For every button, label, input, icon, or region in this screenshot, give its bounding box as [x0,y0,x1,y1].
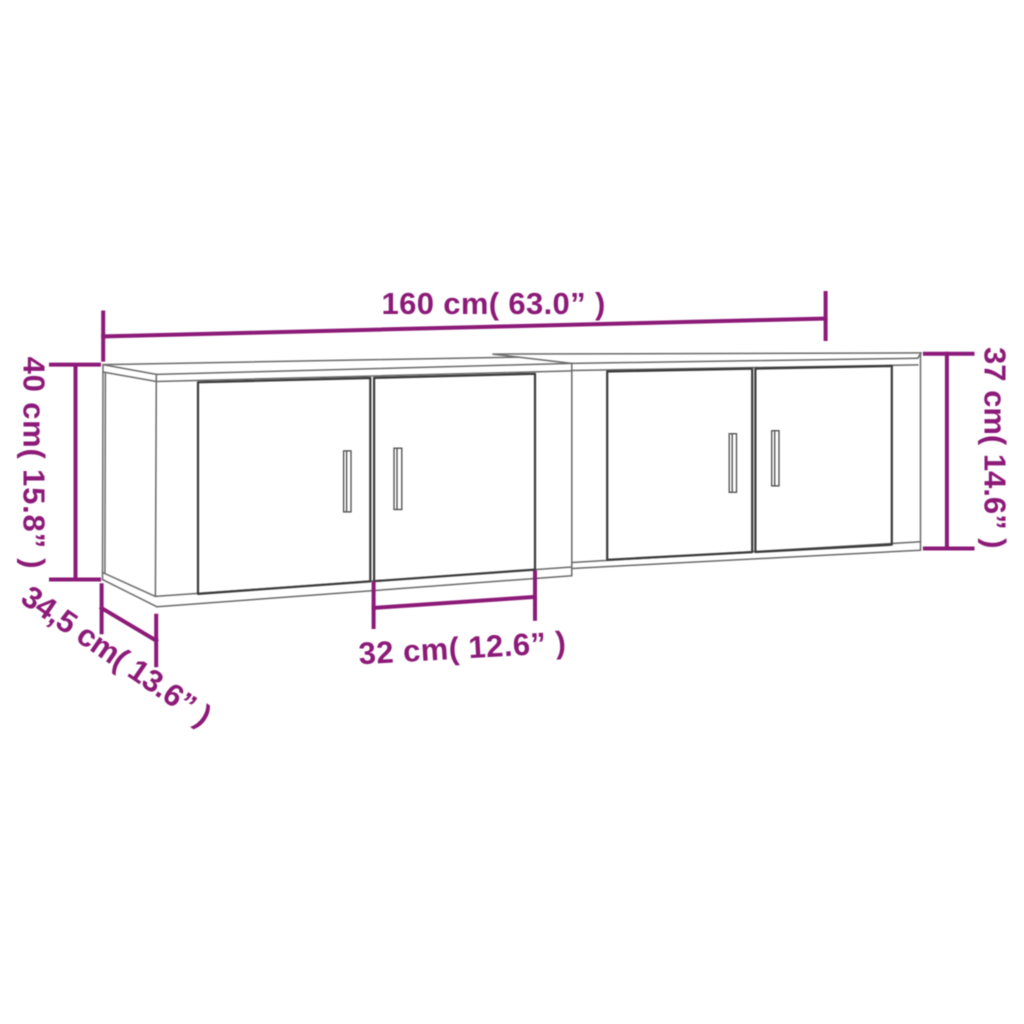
svg-text:37 cm( 14.6” ): 37 cm( 14.6” ) [978,347,1013,549]
svg-text:40 cm( 15.8” ): 40 cm( 15.8” ) [17,357,52,570]
svg-text:160 cm( 63.0” ): 160 cm( 63.0” ) [382,286,606,321]
